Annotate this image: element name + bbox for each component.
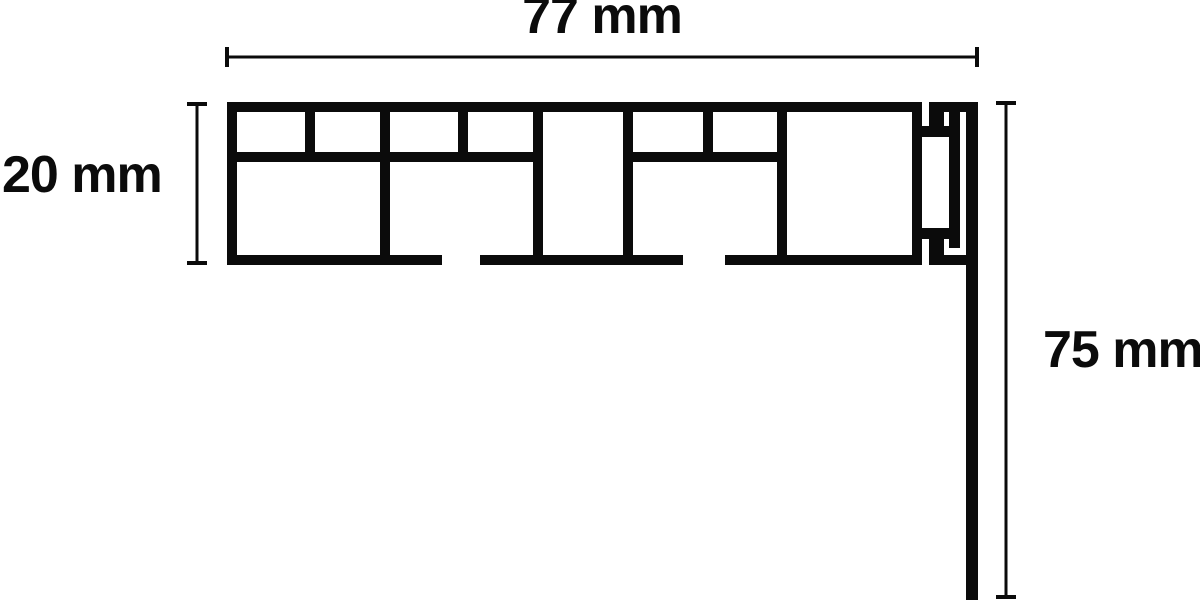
dim-line-drop-75mm-cap-start bbox=[996, 101, 1016, 105]
dimension-label-height: 20 mm bbox=[2, 149, 162, 201]
profile-geometry bbox=[227, 102, 978, 600]
dim-line-drop-75mm bbox=[1005, 103, 1008, 597]
clip-top-bridge bbox=[912, 126, 949, 137]
bottom-wall-left bbox=[227, 255, 442, 265]
clip-bottom-finger bbox=[929, 239, 944, 255]
profile-drawing bbox=[0, 0, 1200, 605]
web-full-3 bbox=[623, 112, 633, 255]
clip-inner-vertical bbox=[949, 112, 960, 248]
web-top-3 bbox=[703, 112, 713, 162]
web-full-2 bbox=[533, 112, 543, 255]
web-top-2 bbox=[458, 112, 468, 162]
bottom-wall-middle bbox=[480, 255, 683, 265]
dim-line-height-20mm bbox=[196, 104, 199, 263]
web-full-1 bbox=[380, 112, 390, 255]
clip-bottom-bridge bbox=[912, 228, 949, 239]
drop-leg bbox=[966, 102, 978, 600]
dim-line-width-77mm bbox=[227, 56, 977, 59]
bottom-wall-right bbox=[725, 255, 922, 265]
web-top-1 bbox=[305, 112, 315, 162]
dim-line-height-20mm-cap-end bbox=[187, 261, 207, 265]
left-wall bbox=[227, 102, 237, 265]
clip-top-finger bbox=[929, 112, 944, 126]
web-full-4 bbox=[777, 112, 787, 255]
dim-line-drop-75mm-cap-end bbox=[996, 595, 1016, 599]
dimension-label-width: 77 mm bbox=[227, 0, 977, 42]
dim-line-height-20mm-cap-start bbox=[187, 102, 207, 106]
dim-line-width-77mm-cap-end bbox=[975, 47, 979, 67]
dimension-label-drop: 75 mm bbox=[1043, 324, 1200, 376]
top-wall bbox=[227, 102, 922, 112]
diagram-canvas: 77 mm 20 mm 75 mm bbox=[0, 0, 1200, 605]
dim-line-width-77mm-cap-start bbox=[225, 47, 229, 67]
